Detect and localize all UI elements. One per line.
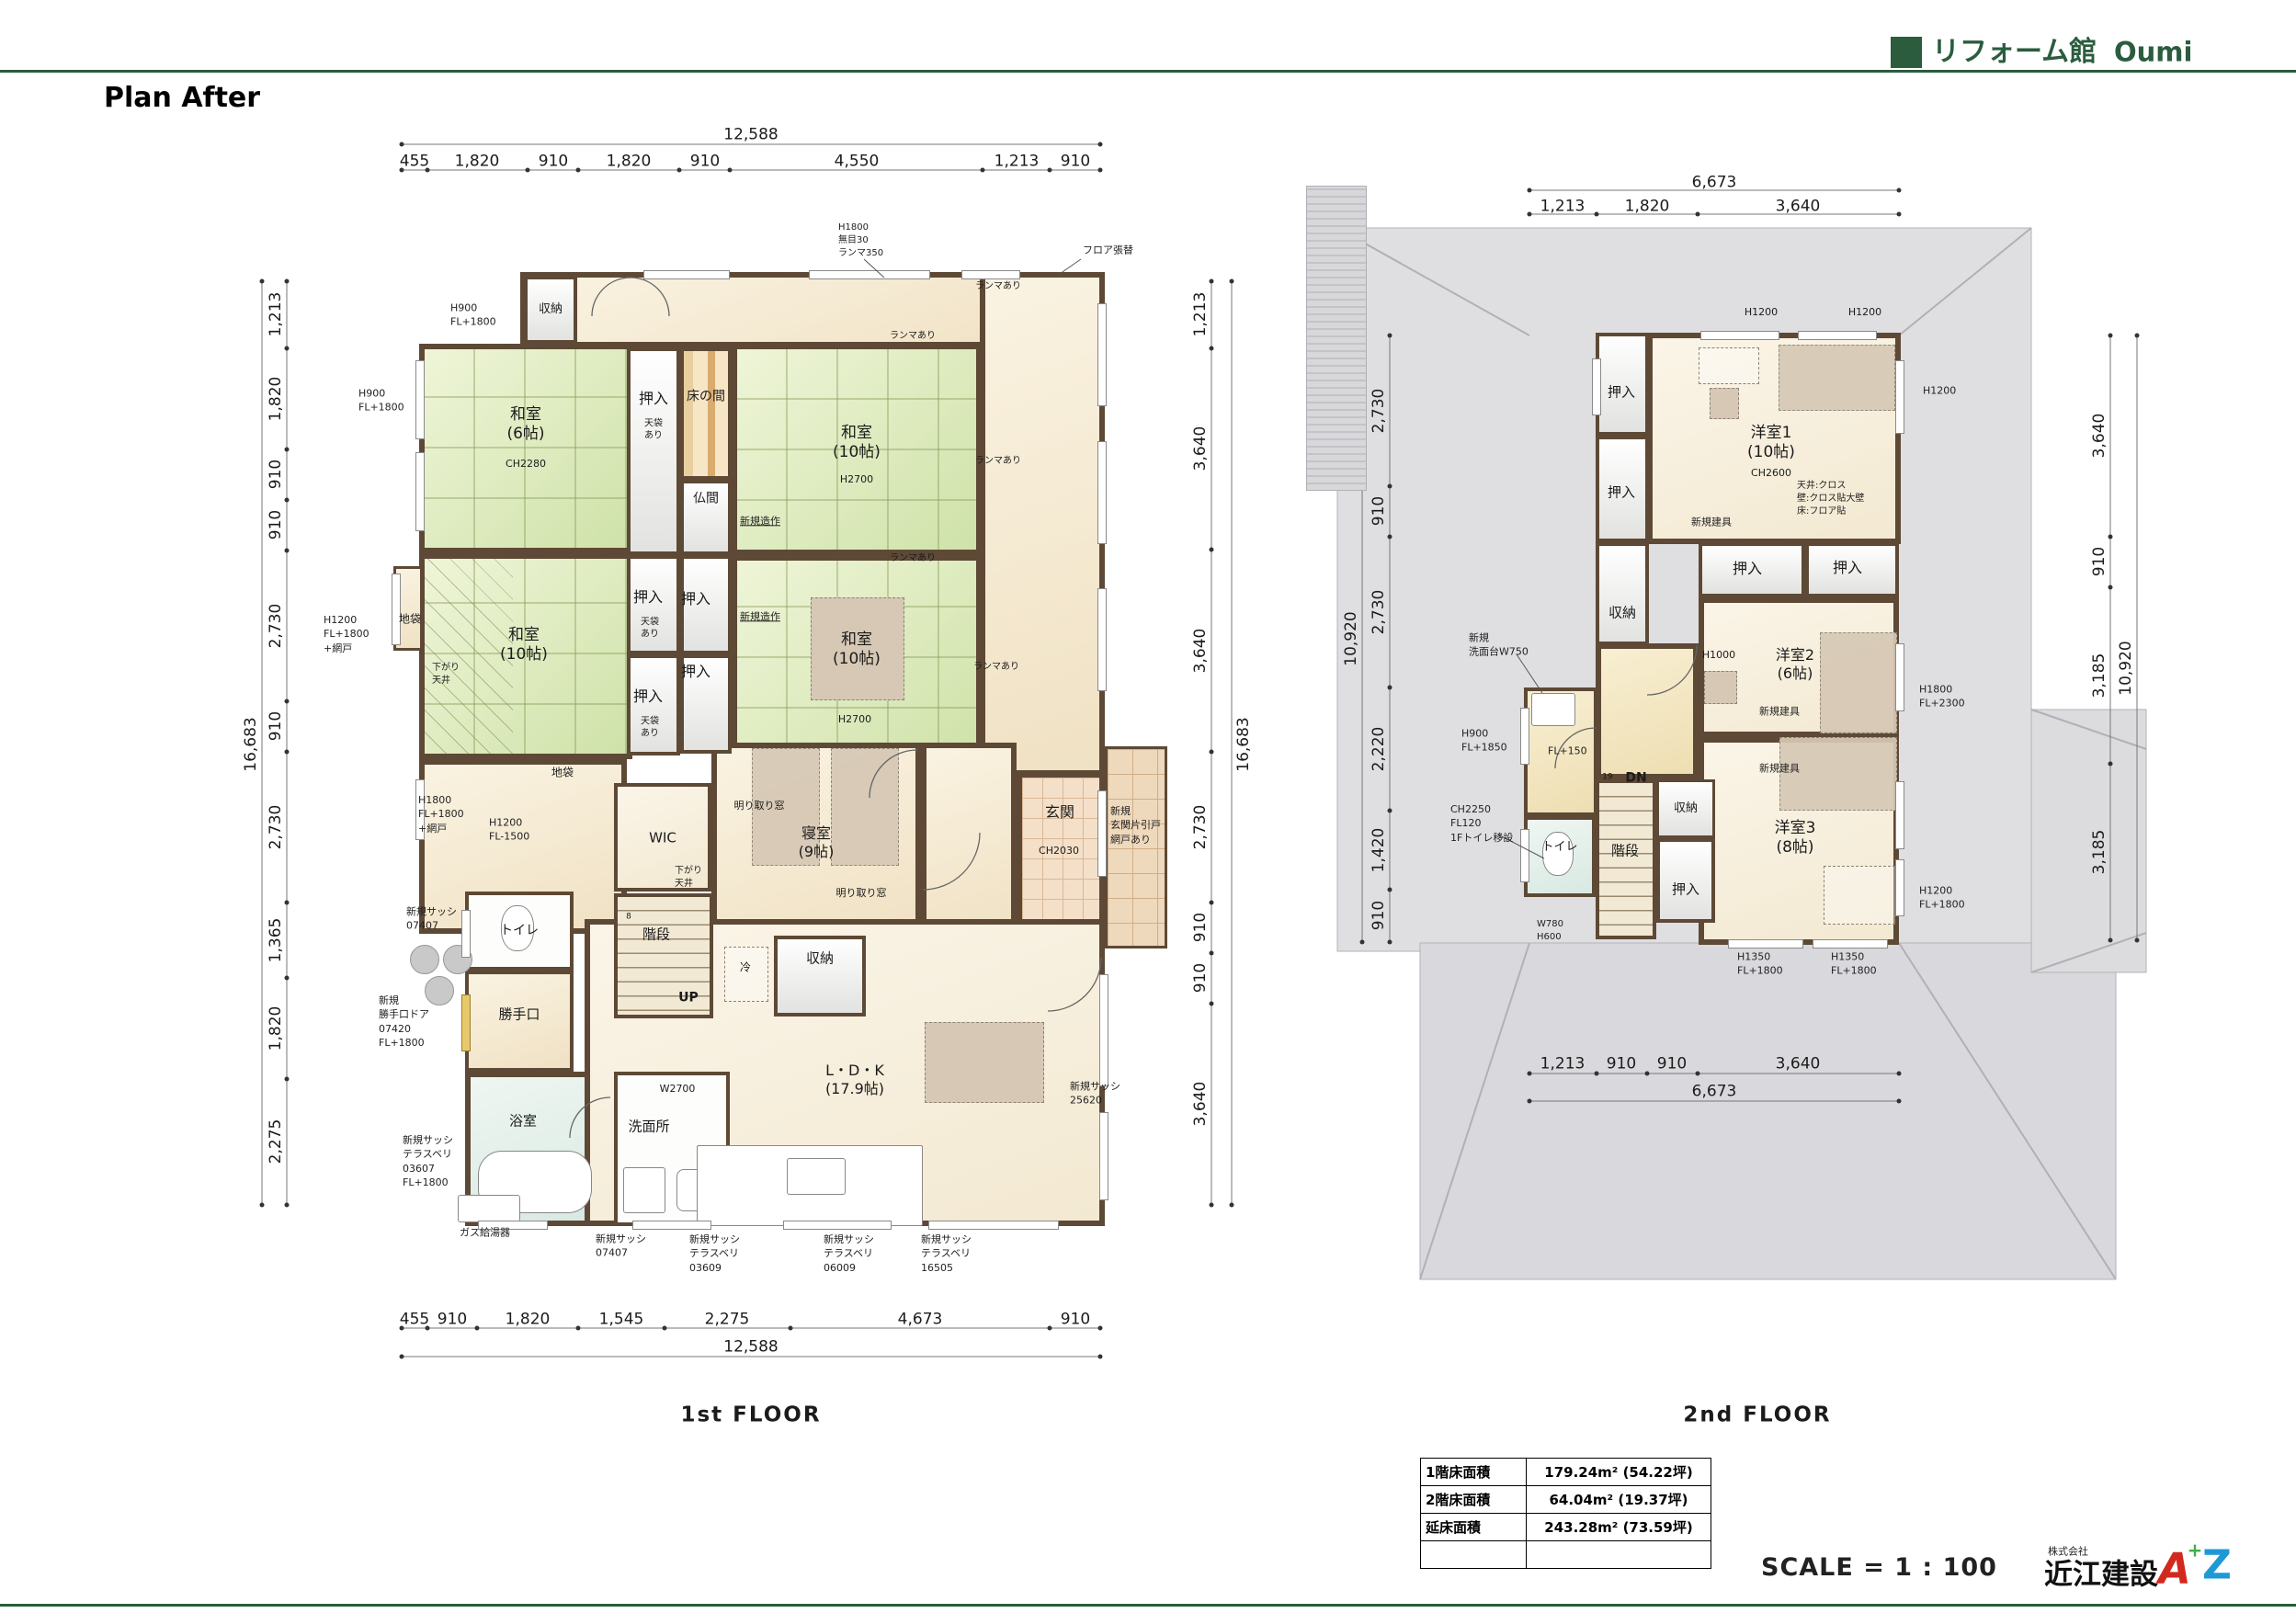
dim: 4,673	[898, 1310, 943, 1329]
window	[1728, 939, 1803, 948]
label-oshiire: 押入	[1672, 881, 1699, 899]
label-katteguchi: 勝手口	[498, 1006, 540, 1024]
ann-h1800-ami: H1800 FL+1800 +網戸	[418, 793, 464, 835]
area-value: 243.28m² (73.59坪)	[1527, 1514, 1711, 1541]
label-storage-mid: 収納	[806, 950, 834, 968]
logo-plus: +	[2188, 1539, 2203, 1562]
room-storage-mid	[774, 936, 866, 1017]
floor-plan-sheet: リフォーム館 Oumi Plan After 1st FLOOR 2nd FLO…	[0, 0, 2296, 1613]
ann-sash-03609: 新規サッシ テラスベリ 03609	[689, 1232, 740, 1275]
label-sagari-tenjo: 下がり 天井	[432, 662, 460, 687]
dim: 2,730	[1191, 805, 1210, 850]
ann-ranma: ランマあり	[890, 553, 936, 565]
ann-ranma: ランマあり	[890, 331, 936, 343]
dim: 3,640	[2090, 414, 2108, 459]
label-ch2600: CH2600	[1751, 467, 1791, 480]
ann-h1200-fl1800: H1200 FL+1800	[1919, 884, 1965, 913]
label-akaritori: 明り取り窓	[836, 887, 887, 900]
ann-sash-03607: 新規サッシ テラスベリ 03607 FL+1800	[403, 1133, 453, 1190]
window	[461, 910, 471, 958]
room-storage-2f-l	[1596, 542, 1649, 645]
label-washitsu10-lr: 和室 (10帖)	[833, 630, 881, 670]
window	[643, 270, 730, 279]
dim: 1,820	[506, 1310, 551, 1329]
table-row: 2階床面積64.04m² (19.37坪)	[1421, 1486, 1711, 1514]
window	[1099, 974, 1108, 1086]
dim: 455	[400, 1310, 429, 1329]
window	[783, 1221, 892, 1230]
brand-name: リフォーム館	[1932, 33, 2097, 72]
dim: 6,673	[1692, 1082, 1737, 1101]
bed	[1779, 345, 1895, 411]
ann-zosaku: 新規造作	[740, 609, 780, 623]
dim-total: 16,683	[1234, 717, 1253, 771]
label-oshiire: 押入	[639, 390, 668, 408]
label-butsuma: 仏間	[693, 491, 719, 507]
ann-gas-heater: ガス給湯器	[460, 1225, 510, 1239]
label-tenbukuro: 天袋 あり	[641, 618, 659, 641]
dim: 1,545	[599, 1310, 644, 1329]
label-storage-2f: 収納	[1608, 605, 1636, 622]
window	[415, 452, 425, 531]
window	[809, 270, 930, 279]
bed	[831, 748, 899, 866]
ann-tategu: 新規建具	[1759, 761, 1800, 775]
scale-label: SCALE = 1 : 100	[1761, 1551, 1997, 1585]
desk	[1704, 671, 1737, 704]
label-oshiire: 押入	[1608, 384, 1635, 402]
ann-washstand: 新規 洗面台W750	[1469, 631, 1529, 660]
dim: 1,213	[1540, 1054, 1586, 1073]
ann-tategu: 新規建具	[1759, 704, 1800, 718]
label-washitsu6: 和室 (6帖)	[506, 405, 544, 445]
area-table: 1階床面積179.24m² (54.22坪) 2階床面積64.04m² (19.…	[1420, 1458, 1711, 1569]
ann-ranma: ランマあり	[975, 281, 1021, 293]
ann-ch2250: CH2250 FL120 1Fトイレ移設	[1450, 802, 1513, 845]
window	[961, 270, 1020, 279]
window	[928, 1221, 1059, 1230]
dim: 1,820	[607, 152, 652, 171]
room-genkan-hall	[921, 743, 1017, 939]
company-name: 近江建設	[2044, 1555, 2158, 1595]
area-value: 64.04m² (19.37坪)	[1527, 1486, 1711, 1514]
header-rule	[0, 70, 2296, 73]
logo-a: A	[2158, 1542, 2191, 1596]
floor1-title: 1st FLOOR	[680, 1403, 821, 1429]
dim: 910	[267, 711, 285, 741]
dim: 3,640	[1776, 197, 1821, 216]
label-oshiire: 押入	[1608, 484, 1635, 502]
dim: 910	[690, 152, 720, 171]
label-yoshitsu1: 洋室1 (10帖)	[1747, 424, 1795, 463]
label-ch2030: CH2030	[1039, 845, 1079, 858]
area-value: 179.24m² (54.22坪)	[1527, 1459, 1711, 1486]
dim: 1,820	[455, 152, 500, 171]
dim: 910	[1607, 1054, 1636, 1073]
desk	[1710, 388, 1739, 419]
label-finish-spec: 天井:クロス 壁:クロス貼大壁 床:フロア貼	[1797, 480, 1864, 518]
dim: 910	[1191, 963, 1210, 993]
ann-katte-door: 新規 勝手口ドア 07420 FL+1800	[379, 994, 429, 1051]
ann-h1200: H1200	[1745, 306, 1778, 319]
label-step-count-2f: 19	[1602, 772, 1612, 782]
dim: 910	[1370, 496, 1388, 526]
ann-floor-replace: フロア張替	[1083, 243, 1133, 256]
ann-h900: H900 FL+1800	[358, 387, 404, 415]
desk	[1699, 347, 1759, 384]
ann-ranma: ランマあり	[975, 456, 1021, 468]
dim: 1,213	[267, 292, 285, 337]
dim: 12,588	[723, 125, 778, 144]
dim: 910	[1657, 1054, 1687, 1073]
dim: 3,640	[1191, 426, 1210, 471]
dim: 3,640	[1776, 1054, 1821, 1073]
ann-h1350: H1350 FL+1800	[1831, 950, 1877, 979]
dim: 910	[2090, 547, 2108, 576]
washer-fixture	[623, 1167, 665, 1213]
ann-h900-fl1850: H900 FL+1850	[1461, 727, 1507, 755]
area-label: 延床面積	[1421, 1514, 1527, 1541]
ann-h1200-ami: H1200 FL+1800 +網戸	[324, 613, 369, 655]
dim: 3,185	[2090, 830, 2108, 875]
label-oshiire: 押入	[681, 590, 710, 608]
gas-tank	[410, 945, 439, 974]
dim: 910	[267, 510, 285, 540]
window	[1895, 781, 1904, 849]
label-sagari-tenjo: 下がり 天井	[675, 865, 702, 891]
ann-h1800-mume: H1800 無目30 ランマ350	[838, 222, 883, 260]
desk	[1824, 866, 1895, 925]
dim: 4,550	[835, 152, 880, 171]
dim: 2,730	[1370, 389, 1388, 434]
roof-hatch-patch	[1306, 186, 1367, 491]
label-washitsu10-l: 和室 (10帖)	[500, 626, 548, 665]
ann-h1200: H1200	[1923, 383, 1956, 397]
dim: 12,588	[723, 1337, 778, 1357]
dim: 6,673	[1692, 173, 1737, 192]
ann-h1200-fl1500: H1200 FL-1500	[489, 816, 529, 845]
window	[1520, 708, 1529, 765]
window	[415, 360, 425, 439]
dim: 3,185	[2090, 653, 2108, 699]
label-storage-top: 収納	[539, 302, 563, 317]
label-shinshitsu: 寝室 (9帖)	[799, 824, 835, 861]
ann-sash-16505: 新規サッシ テラスベリ 16505	[921, 1232, 972, 1275]
ann-h900: H900 FL+1800	[450, 301, 496, 330]
window	[1592, 358, 1601, 415]
bed	[1820, 632, 1897, 733]
dim: 1,820	[267, 1006, 285, 1051]
entrance-sliding-door	[1097, 790, 1107, 877]
label-oshiire: 押入	[633, 588, 663, 607]
label-jibukuro: 地袋	[399, 613, 421, 627]
window	[1097, 588, 1107, 691]
ann-h1350: H1350 FL+1800	[1737, 950, 1783, 979]
dim-total: 16,683	[242, 717, 260, 771]
page-title: Plan After	[104, 79, 260, 118]
dim: 1,213	[995, 152, 1040, 171]
label-toilet: トイレ	[500, 923, 539, 939]
dim: 910	[438, 1310, 467, 1329]
label-h1000: H1000	[1702, 649, 1735, 662]
dim: 1,213	[1191, 292, 1210, 337]
ann-sash-25620: 新規サッシ 25620	[1070, 1080, 1120, 1108]
window	[1520, 829, 1529, 882]
label-oshiire: 押入	[633, 687, 663, 706]
window	[1097, 441, 1107, 544]
dim-total: 10,920	[1342, 611, 1360, 665]
label-yokushitsu: 浴室	[509, 1113, 537, 1130]
label-yoshitsu2: 洋室2 (6帖)	[1776, 646, 1814, 683]
label-toilet-2f: トイレ	[1541, 840, 1577, 855]
table-row	[1421, 1541, 1711, 1569]
label-tenbukuro: 天袋 あり	[644, 419, 663, 442]
water-heater	[458, 1195, 520, 1222]
ann-sash-07407: 新規サッシ 07407	[596, 1232, 646, 1261]
room-engawa	[980, 272, 1105, 776]
label-yoshitsu3: 洋室3 (8帖)	[1775, 819, 1816, 858]
room-hall-2f	[1596, 643, 1699, 779]
label-ldk: L・D・K (17.9帖)	[825, 1062, 884, 1098]
ann-ranma: ランマあり	[973, 662, 1019, 674]
label-dn: DN	[1625, 770, 1646, 787]
label-w2700: W2700	[660, 1083, 696, 1096]
label-wic: WIC	[649, 830, 676, 847]
table-row: 延床面積243.28m² (73.59坪)	[1421, 1514, 1711, 1541]
label-storage-2f-c: 収納	[1674, 801, 1698, 816]
dim: 2,275	[705, 1310, 750, 1329]
label-jibukuro: 地袋	[551, 767, 574, 780]
label-akaritori: 明り取り窓	[734, 800, 785, 812]
ann-tategu: 新規建具	[1691, 515, 1732, 528]
dim: 3,640	[1191, 629, 1210, 674]
room-washitsu-6	[419, 344, 632, 553]
dim: 3,640	[1191, 1082, 1210, 1127]
dim: 1,820	[267, 377, 285, 422]
area-label: 1階床面積	[1421, 1459, 1527, 1486]
logo-z: Z	[2202, 1540, 2232, 1591]
brand-suffix: Oumi	[2114, 34, 2192, 72]
room-tokonoma	[680, 347, 732, 480]
label-fridge: 冷	[740, 961, 751, 975]
ann-sash-06009: 新規サッシ テラスベリ 06009	[824, 1232, 874, 1275]
window	[1895, 360, 1904, 434]
window	[1798, 331, 1877, 340]
label-h2700: H2700	[840, 473, 873, 486]
dim: 1,213	[1540, 197, 1586, 216]
kitchen-sink	[787, 1158, 846, 1195]
dim: 910	[539, 152, 568, 171]
label-up: UP	[678, 990, 699, 1006]
label-senmenjo: 洗面所	[628, 1119, 669, 1136]
window	[1099, 1112, 1108, 1200]
dim: 1,365	[267, 918, 285, 963]
dim: 2,220	[1370, 727, 1388, 772]
label-tenbukuro: 天袋 あり	[641, 717, 659, 740]
area-label	[1421, 1541, 1527, 1569]
ann-sash-07407: 新規サッシ 07407	[406, 905, 457, 934]
window	[1895, 643, 1904, 711]
label-oshiire: 押入	[681, 663, 710, 681]
dim: 2,730	[267, 604, 285, 649]
window	[1813, 939, 1888, 948]
dim: 1,820	[1625, 197, 1670, 216]
ann-zosaku: 新規造作	[740, 514, 780, 528]
dim: 2,730	[1370, 590, 1388, 635]
label-oshiire: 押入	[1733, 560, 1762, 578]
label-ch2280: CH2280	[506, 458, 546, 471]
ann-h1800-fl2300: H1800 FL+2300	[1919, 683, 1965, 711]
ann-fl150: FL+150	[1548, 744, 1587, 757]
label-kaidan: 階段	[642, 926, 670, 944]
dim: 910	[267, 460, 285, 489]
window	[1700, 331, 1779, 340]
window	[1097, 303, 1107, 406]
label-genkan: 玄関	[1045, 803, 1074, 822]
dim: 910	[1370, 901, 1388, 930]
washbasin-fixture-2f	[1531, 693, 1575, 726]
dim: 910	[1191, 913, 1210, 942]
table-row: 1階床面積179.24m² (54.22坪)	[1421, 1459, 1711, 1486]
dim: 910	[1061, 1310, 1090, 1329]
room-oshiire-top	[627, 347, 680, 555]
dim-total: 10,920	[2117, 641, 2135, 695]
area-label: 2階床面積	[1421, 1486, 1527, 1514]
window	[632, 1221, 711, 1230]
dim: 2,275	[267, 1119, 285, 1164]
label-washitsu10-ur: 和室 (10帖)	[833, 424, 881, 463]
area-value	[1527, 1541, 1711, 1569]
ann-genkan-door: 新規 玄関片引戸 網戸あり	[1110, 804, 1161, 846]
label-h2700: H2700	[838, 713, 871, 726]
footer-rule	[0, 1604, 2296, 1607]
label-oshiire: 押入	[1833, 559, 1862, 577]
label-step-count: 8	[626, 912, 631, 922]
entrance-porch	[1105, 746, 1167, 948]
dim: 1,420	[1370, 828, 1388, 873]
window	[1895, 859, 1904, 916]
label-tokonoma: 床の間	[687, 389, 725, 405]
dim: 910	[1061, 152, 1090, 171]
ann-h1200: H1200	[1848, 306, 1881, 319]
ann-w780: W780 H600	[1537, 918, 1563, 944]
dim: 455	[400, 152, 429, 171]
window	[392, 574, 401, 645]
label-kaidan: 階段	[1611, 843, 1639, 860]
floor2-title: 2nd FLOOR	[1683, 1403, 1831, 1429]
brand-square-icon	[1891, 37, 1922, 68]
dim: 2,730	[267, 805, 285, 850]
kitchen-back-door	[461, 994, 471, 1051]
dining-table	[925, 1022, 1044, 1103]
